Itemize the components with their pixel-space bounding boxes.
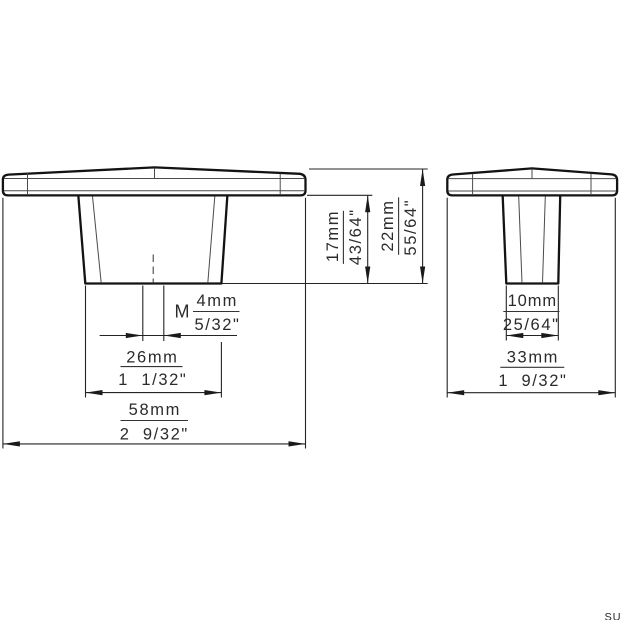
- svg-text:26mm: 26mm: [126, 349, 178, 367]
- svg-text:1 9/32": 1 9/32": [498, 372, 567, 390]
- svg-text:5/32": 5/32": [195, 316, 241, 334]
- svg-text:SU: SU: [605, 612, 620, 620]
- svg-text:M: M: [175, 302, 190, 322]
- svg-text:33mm: 33mm: [507, 349, 559, 367]
- svg-text:25/64": 25/64": [503, 316, 560, 334]
- svg-text:1 1/32": 1 1/32": [118, 371, 187, 389]
- svg-text:2 9/32": 2 9/32": [120, 426, 189, 444]
- svg-text:55/64": 55/64": [402, 199, 420, 256]
- svg-text:4mm: 4mm: [196, 292, 237, 310]
- svg-text:22mm: 22mm: [379, 199, 397, 251]
- svg-text:43/64": 43/64": [347, 208, 365, 265]
- svg-text:17mm: 17mm: [324, 210, 342, 262]
- svg-text:10mm: 10mm: [508, 292, 557, 310]
- svg-text:58mm: 58mm: [129, 401, 181, 419]
